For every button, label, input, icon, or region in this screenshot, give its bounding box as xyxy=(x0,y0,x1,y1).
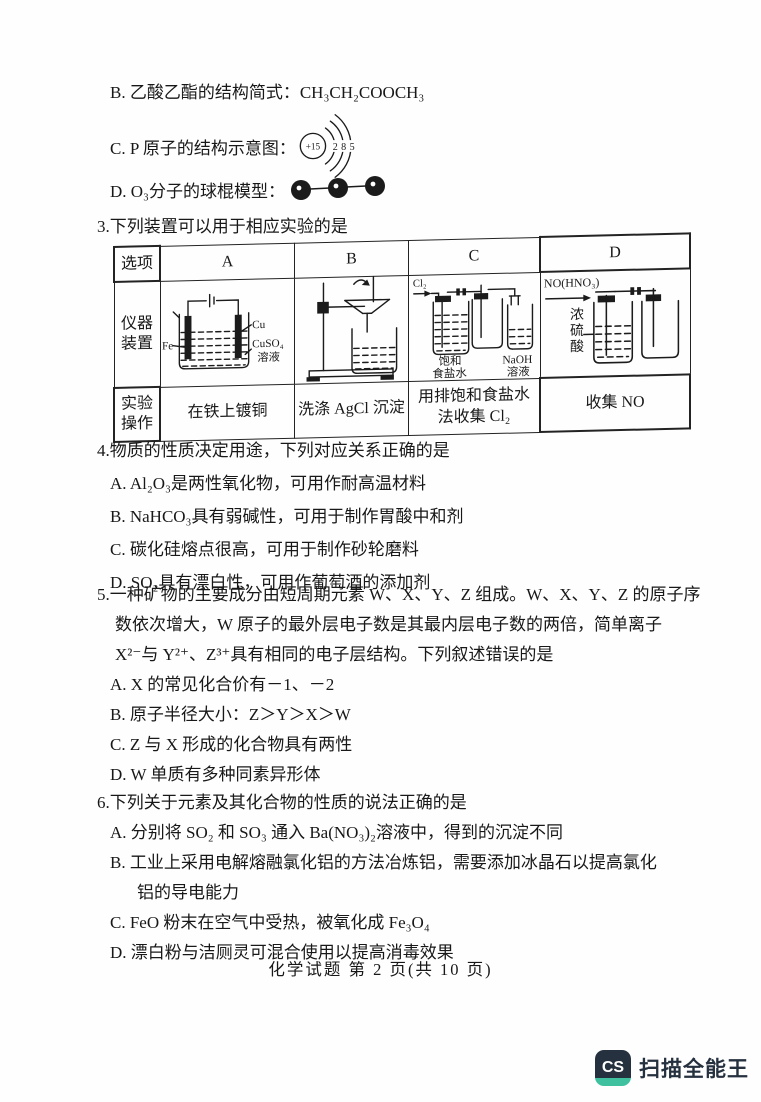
option-line-continuation: 铝的导电能力 xyxy=(110,878,657,908)
column-header-c: C xyxy=(409,237,541,275)
option-c-line: C. P 原子的结构示意图： +15 2 8 5 xyxy=(110,114,372,178)
operation-cell-d: 收集 NO xyxy=(540,374,690,432)
column-header-d: D xyxy=(540,233,690,272)
apparatus-cell-d: 浓硫酸 NO(HNO₃) xyxy=(540,268,690,378)
label-solution: 溶液 xyxy=(258,349,281,364)
option-line: C. Z 与 X 形成的化合物具有两性 xyxy=(110,730,700,760)
option-line: A. Al₂O₃是两性氧化物，可用作耐高温材料 xyxy=(110,467,463,500)
operation-c-line1: 用排饱和食盐水 xyxy=(409,384,539,408)
gas-washing-diagram: Cl₂ xyxy=(412,274,536,380)
apparatus-cell-b xyxy=(295,275,409,384)
q5-stem-line3: X²⁻与 Y²⁺、Z³⁺具有相同的电子层结构。下列叙述错误的是 xyxy=(97,640,700,670)
q4-stem: 4.物质的性质决定用途，下列对应关系正确的是 xyxy=(97,434,463,467)
q5-stem-line1: 5.一种矿物的主要成分由短周期元素 W、X、Y、Z 组成。W、X、Y、Z 的原子… xyxy=(97,580,700,610)
label-brine-line2: 食盐水 xyxy=(433,366,468,380)
experiment-table: 选项 A B C D 仪器装置 xyxy=(113,232,691,443)
option-line: B. 原子半径大小：Z＞Y＞X＞W xyxy=(110,700,700,730)
column-header-a: A xyxy=(160,243,295,281)
question-6: 6.下列关于元素及其化合物的性质的说法正确的是 A. 分别将 SO₂ 和 SO₃… xyxy=(97,788,657,968)
electroplating-diagram: Fe Cu CuSO₄ 溶液 xyxy=(162,290,292,380)
footer-page-number: 化学试题 第 2 页(共 10 页) xyxy=(0,956,761,980)
option-c-text: C. P 原子的结构示意图： xyxy=(110,134,296,159)
scanned-exam-page: B. 乙酸乙酯的结构简式：CH₃CH₂COOCH₃ C. P 原子的结构示意图：… xyxy=(0,0,761,1102)
q5-stem-line2: 数依次增大，W 原子的最外层电子数是其最内层电子数的两倍，简单离子 xyxy=(97,610,700,640)
label-brine-line1: 饱和 xyxy=(439,353,462,368)
option-line: C. FeO 粉末在空气中受热，被氧化成 Fe₃O₄ xyxy=(110,908,657,938)
label-naoh-line1: NaOH xyxy=(503,354,533,367)
shell-count-3: 5 xyxy=(350,142,355,153)
label-cl2-gas: Cl₂ xyxy=(413,278,427,289)
option-line: D. W 单质有多种同素异形体 xyxy=(110,760,700,790)
camscanner-app-name: 扫描全能王 xyxy=(639,1053,749,1083)
apparatus-cell-a: Fe Cu CuSO₄ 溶液 xyxy=(160,278,295,387)
option-d-text: D. O₃分子的球棍模型： xyxy=(110,177,285,202)
camscanner-logo: CS xyxy=(595,1050,631,1086)
column-header-b: B xyxy=(295,240,409,278)
option-line: B. NaHCO₃具有弱碱性，可用于制作胃酸中和剂 xyxy=(110,500,463,533)
ozone-ball-stick-model xyxy=(288,176,388,202)
option-line: C. 碳化硅熔点很高，可用于制作砂轮磨料 xyxy=(110,533,463,566)
option-line: A. X 的常见化合价有－1、－2 xyxy=(110,670,700,700)
atom-structure-diagram: +15 2 8 5 xyxy=(296,114,372,178)
question-4: 4.物质的性质决定用途，下列对应关系正确的是 A. Al₂O₃是两性氧化物，可用… xyxy=(97,434,463,599)
shell-count-1: 2 xyxy=(333,142,338,153)
apparatus-row-label: 仪器装置 xyxy=(114,281,160,388)
no-collection-diagram: NO(HNO₃) xyxy=(542,272,688,375)
label-naoh-line2: 溶液 xyxy=(507,364,530,379)
operation-c-line2: 法收集 Cl₂ xyxy=(409,405,539,429)
camscanner-watermark: CS 扫描全能王 xyxy=(595,1050,749,1086)
operation-cell-c: 用排饱和食盐水 法收集 Cl₂ xyxy=(409,378,541,435)
question-5: 5.一种矿物的主要成分由短周期元素 W、X、Y、Z 组成。W、X、Y、Z 的原子… xyxy=(97,580,700,790)
label-concentrated-h2so4: 浓硫酸 xyxy=(569,308,586,356)
label-fe: Fe xyxy=(162,340,173,352)
filtration-diagram xyxy=(302,274,402,383)
q3-stem: 3.下列装置可以用于相应实验的是 xyxy=(97,212,348,237)
table-corner-header: 选项 xyxy=(114,246,160,282)
option-b-line: B. 乙酸乙酯的结构简式：CH₃CH₂COOCH₃ xyxy=(110,78,424,103)
label-no-gas: NO(HNO₃) xyxy=(544,275,600,290)
option-d-line: D. O₃分子的球棍模型： xyxy=(110,176,388,202)
apparatus-cell-c: Cl₂ xyxy=(409,272,541,381)
label-cu: Cu xyxy=(252,318,266,330)
nucleus-label: +15 xyxy=(306,142,321,152)
label-cuso4: CuSO₄ xyxy=(252,337,284,350)
operation-cell-a: 在铁上镀铜 xyxy=(160,384,295,441)
operation-cell-b: 洗涤 AgCl 沉淀 xyxy=(295,381,409,438)
q6-stem: 6.下列关于元素及其化合物的性质的说法正确的是 xyxy=(97,788,657,818)
option-line: B. 工业上采用电解熔融氯化铝的方法冶炼铝，需要添加冰晶石以提高氯化 xyxy=(110,848,657,878)
shell-count-2: 8 xyxy=(341,142,346,153)
option-line: A. 分别将 SO₂ 和 SO₃ 通入 Ba(NO₃)₂溶液中，得到的沉淀不同 xyxy=(110,818,657,848)
